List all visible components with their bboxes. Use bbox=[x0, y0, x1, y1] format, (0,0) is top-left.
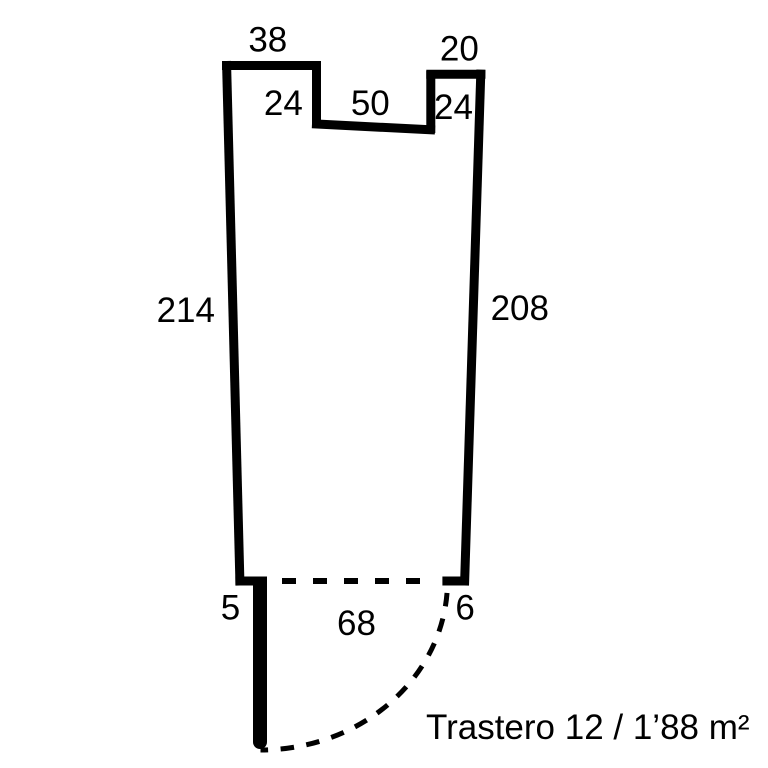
svg-text:50: 50 bbox=[351, 84, 390, 123]
svg-text:208: 208 bbox=[491, 289, 549, 328]
svg-text:38: 38 bbox=[248, 20, 287, 59]
svg-text:Trastero 12 / 1’88 m²: Trastero 12 / 1’88 m² bbox=[426, 708, 750, 747]
svg-text:20: 20 bbox=[440, 29, 479, 68]
svg-text:5: 5 bbox=[221, 589, 240, 628]
svg-text:214: 214 bbox=[157, 291, 215, 330]
svg-text:24: 24 bbox=[434, 88, 473, 127]
svg-text:68: 68 bbox=[337, 604, 376, 643]
svg-text:24: 24 bbox=[264, 84, 303, 123]
svg-text:6: 6 bbox=[455, 589, 474, 628]
